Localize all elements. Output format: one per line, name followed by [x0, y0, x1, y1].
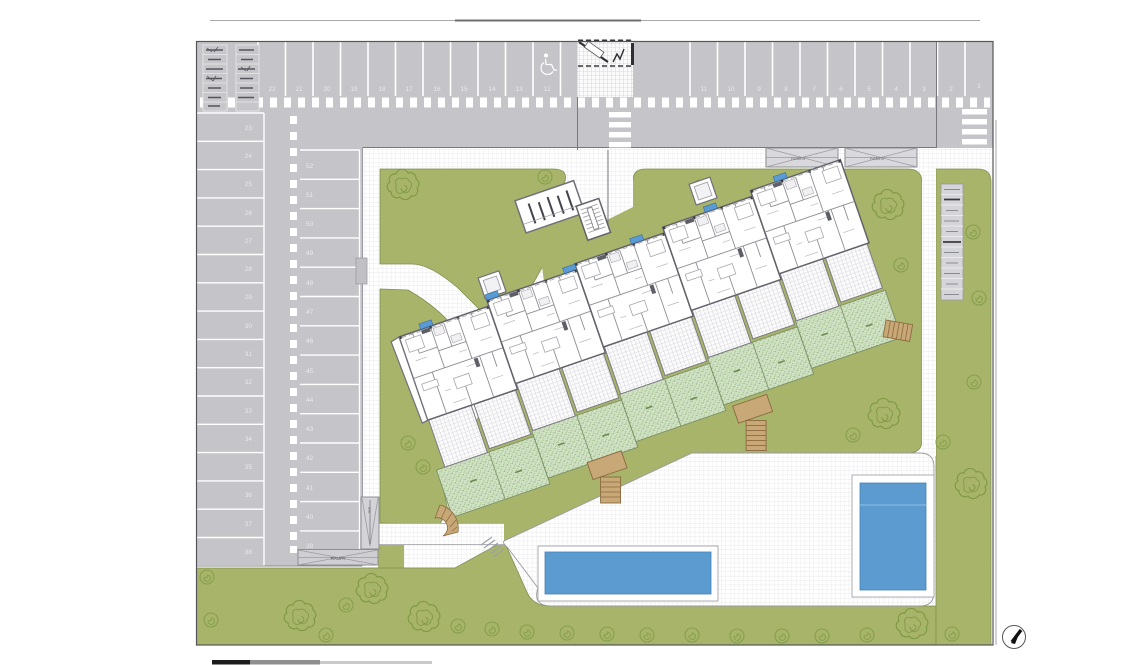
svg-text:5%: 5%	[367, 507, 372, 513]
svg-text:8: 8	[784, 86, 788, 93]
svg-text:29: 29	[245, 294, 253, 301]
svg-text:16: 16	[433, 86, 441, 93]
svg-text:30: 30	[245, 323, 253, 330]
svg-text:3: 3	[922, 86, 926, 93]
svg-text:51: 51	[306, 192, 314, 199]
svg-text:19: 19	[350, 86, 358, 93]
svg-text:32: 32	[245, 379, 253, 386]
svg-text:27: 27	[245, 238, 253, 245]
svg-text:37: 37	[245, 521, 253, 528]
svg-text:35: 35	[245, 464, 253, 471]
svg-text:10: 10	[727, 86, 735, 93]
svg-text:31: 31	[245, 351, 253, 358]
svg-text:1: 1	[977, 83, 981, 90]
svg-text:12: 12	[543, 86, 551, 93]
svg-text:36: 36	[245, 492, 253, 499]
svg-text:7: 7	[812, 86, 816, 93]
svg-text:18: 18	[378, 86, 386, 93]
svg-text:33: 33	[245, 408, 253, 415]
svg-text:17: 17	[405, 86, 413, 93]
svg-text:14: 14	[488, 86, 496, 93]
svg-text:47: 47	[306, 309, 314, 316]
svg-text:RAMPA: RAMPA	[331, 556, 346, 561]
svg-text:43: 43	[306, 426, 314, 433]
svg-text:50: 50	[306, 221, 314, 228]
svg-text:45: 45	[306, 368, 314, 375]
svg-text:49: 49	[306, 250, 314, 257]
svg-text:44: 44	[306, 397, 314, 404]
svg-text:6: 6	[839, 86, 843, 93]
svg-text:24: 24	[245, 153, 253, 160]
svg-text:41: 41	[306, 485, 314, 492]
svg-text:48: 48	[306, 280, 314, 287]
svg-text:9: 9	[757, 86, 761, 93]
svg-text:39: 39	[306, 543, 314, 550]
svg-text:RAMPA: RAMPA	[870, 156, 884, 161]
svg-text:15: 15	[460, 86, 468, 93]
svg-text:38: 38	[245, 549, 253, 556]
svg-text:21: 21	[295, 86, 303, 93]
svg-text:5: 5	[867, 86, 871, 93]
svg-text:25: 25	[245, 181, 253, 188]
svg-text:42: 42	[306, 455, 314, 462]
svg-text:4: 4	[894, 86, 898, 93]
svg-text:11: 11	[701, 86, 708, 93]
svg-text:52: 52	[306, 163, 314, 170]
svg-text:22: 22	[268, 86, 276, 93]
svg-text:34: 34	[245, 436, 253, 443]
svg-text:40: 40	[306, 514, 314, 521]
svg-text:2: 2	[949, 86, 953, 93]
svg-text:28: 28	[245, 266, 253, 273]
svg-text:RAMPA: RAMPA	[791, 156, 805, 161]
svg-text:20: 20	[323, 86, 331, 93]
svg-text:26: 26	[245, 210, 253, 217]
svg-text:13: 13	[515, 86, 523, 93]
svg-text:23: 23	[245, 125, 253, 132]
svg-text:46: 46	[306, 338, 314, 345]
